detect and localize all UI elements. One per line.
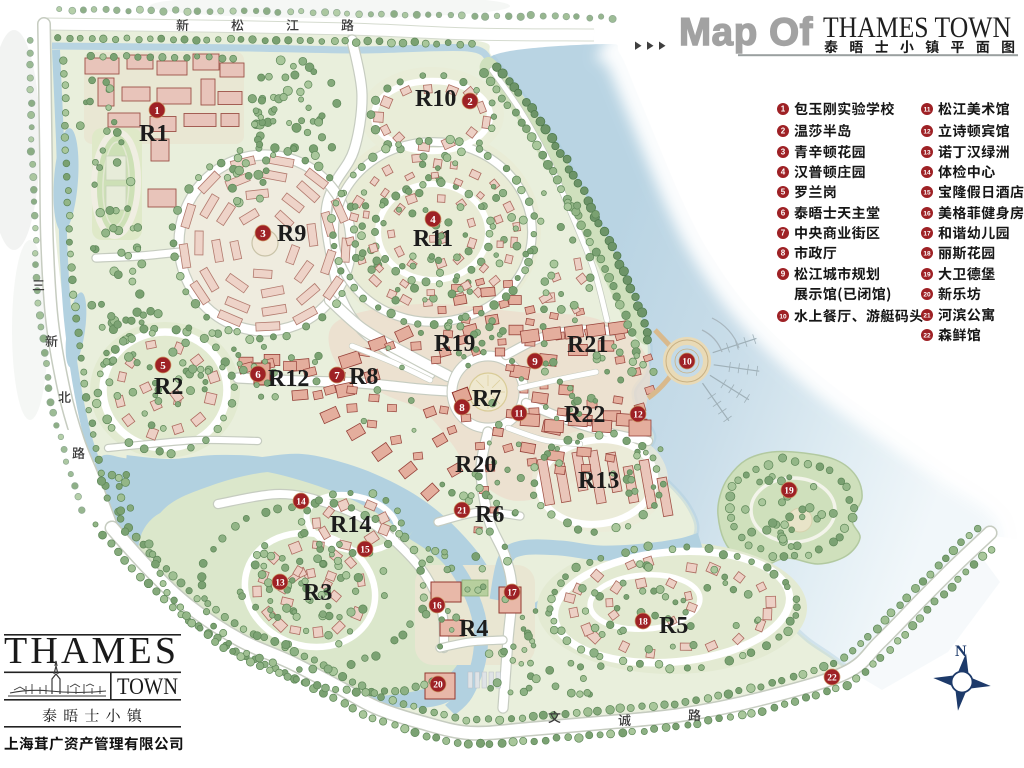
svg-text:TOWN: TOWN (117, 674, 178, 699)
svg-text:R21: R21 (567, 332, 608, 358)
svg-text:3: 3 (260, 228, 266, 240)
svg-text:18: 18 (638, 617, 648, 627)
svg-text:R8: R8 (349, 364, 378, 390)
svg-text:12: 12 (923, 129, 931, 136)
svg-text:7: 7 (334, 370, 340, 382)
svg-text:5: 5 (160, 360, 166, 372)
svg-text:R4: R4 (459, 616, 488, 642)
svg-text:19: 19 (923, 272, 931, 279)
svg-text:R13: R13 (578, 468, 619, 494)
svg-text:Map Of: Map Of (679, 11, 813, 54)
svg-text:17: 17 (923, 231, 931, 238)
svg-text:4: 4 (430, 214, 436, 226)
svg-text:R11: R11 (413, 226, 453, 252)
svg-text:N: N (955, 643, 967, 660)
svg-text:8: 8 (781, 249, 786, 258)
svg-text:R22: R22 (564, 402, 605, 428)
svg-text:9: 9 (532, 356, 538, 368)
svg-text:1: 1 (781, 105, 786, 114)
svg-text:R6: R6 (475, 502, 504, 528)
svg-text:R19: R19 (434, 331, 475, 357)
svg-text:11: 11 (515, 409, 524, 419)
svg-text:18: 18 (923, 251, 931, 258)
svg-text:2: 2 (781, 127, 786, 136)
svg-text:R5: R5 (659, 613, 688, 639)
svg-text:20: 20 (923, 292, 931, 299)
svg-text:8: 8 (459, 402, 465, 414)
svg-text:17: 17 (507, 588, 517, 598)
svg-text:1: 1 (154, 105, 160, 117)
svg-text:21: 21 (923, 313, 931, 320)
svg-text:R3: R3 (303, 580, 332, 606)
svg-text:3: 3 (781, 148, 786, 157)
svg-text:THAMES TOWN: THAMES TOWN (823, 11, 1011, 44)
svg-text:10: 10 (779, 314, 787, 321)
svg-text:14: 14 (923, 170, 931, 177)
svg-text:R9: R9 (277, 221, 306, 247)
svg-text:16: 16 (432, 601, 442, 611)
svg-text:13: 13 (275, 578, 285, 588)
svg-text:R14: R14 (330, 512, 371, 538)
svg-text:12: 12 (633, 410, 643, 420)
svg-text:5: 5 (781, 188, 786, 197)
svg-text:15: 15 (923, 190, 931, 197)
svg-text:14: 14 (296, 497, 306, 507)
svg-text:19: 19 (784, 486, 794, 496)
svg-text:7: 7 (781, 229, 786, 238)
svg-text:13: 13 (923, 150, 931, 157)
svg-text:20: 20 (433, 680, 443, 690)
svg-text:R2: R2 (154, 374, 183, 400)
svg-text:16: 16 (923, 211, 931, 218)
svg-text:R7: R7 (472, 386, 501, 412)
svg-text:21: 21 (457, 506, 467, 516)
svg-text:6: 6 (255, 369, 261, 381)
svg-text:R1: R1 (139, 121, 168, 147)
svg-text:2: 2 (467, 96, 473, 108)
svg-text:R20: R20 (455, 452, 496, 478)
svg-text:11: 11 (924, 107, 931, 114)
svg-text:22: 22 (827, 673, 837, 683)
svg-text:R10: R10 (415, 86, 456, 112)
svg-text:R12: R12 (268, 366, 309, 392)
svg-text:22: 22 (923, 333, 931, 340)
svg-text:10: 10 (682, 357, 692, 367)
svg-text:6: 6 (781, 209, 786, 218)
svg-text:9: 9 (781, 270, 786, 279)
svg-text:15: 15 (360, 545, 370, 555)
svg-text:4: 4 (781, 168, 786, 177)
